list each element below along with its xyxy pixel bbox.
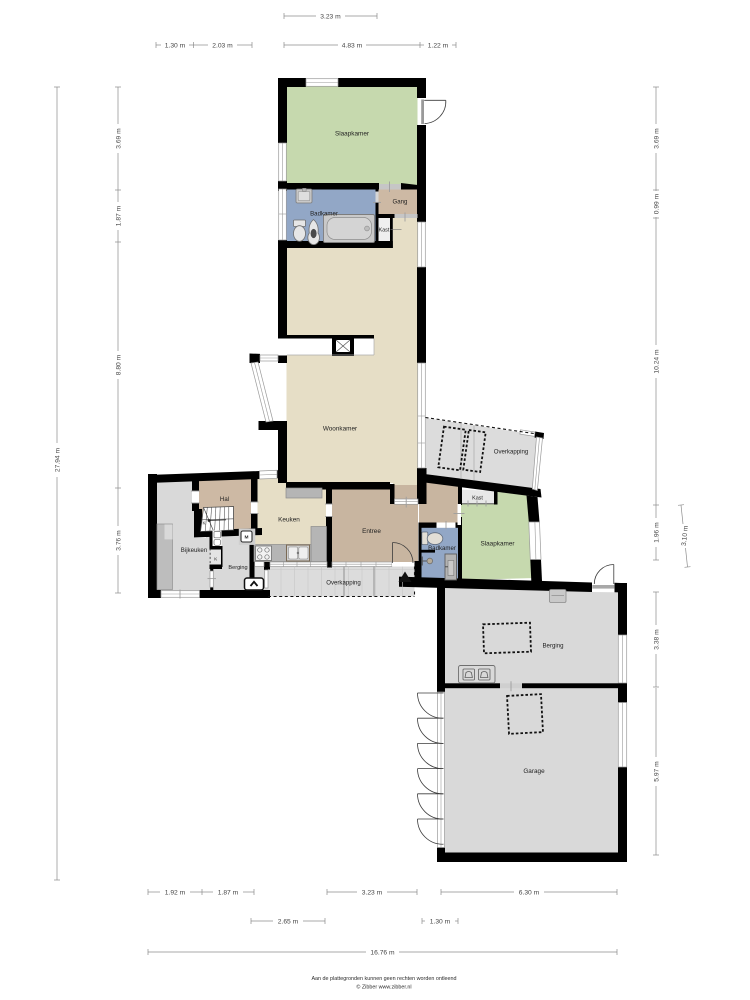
svg-text:K: K [214, 557, 217, 562]
svg-text:Overkapping: Overkapping [326, 580, 361, 587]
svg-text:8.80 m: 8.80 m [116, 354, 123, 375]
svg-text:Kast: Kast [472, 496, 483, 502]
svg-text:Slaapkamer: Slaapkamer [480, 541, 515, 548]
svg-text:K: K [202, 521, 205, 526]
svg-text:3.76 m: 3.76 m [116, 530, 123, 551]
svg-text:Overkapping: Overkapping [494, 449, 529, 456]
svg-text:© Zibber www.zibber.nl: © Zibber www.zibber.nl [356, 984, 411, 991]
svg-text:Badkamer: Badkamer [310, 211, 338, 218]
svg-text:Aan de plattegronden kunnen ge: Aan de plattegronden kunnen geen rechten… [311, 976, 456, 982]
svg-text:3.23 m: 3.23 m [362, 890, 383, 897]
svg-text:3.23 m: 3.23 m [320, 14, 341, 21]
svg-text:27.94 m: 27.94 m [55, 447, 62, 472]
svg-text:3.69 m: 3.69 m [116, 128, 123, 149]
svg-text:1.92 m: 1.92 m [165, 890, 186, 897]
svg-text:1.22 m: 1.22 m [428, 43, 449, 50]
svg-text:Bijkeuken: Bijkeuken [181, 547, 207, 554]
svg-text:1.96 m: 1.96 m [654, 522, 661, 543]
svg-text:M: M [245, 534, 249, 540]
svg-text:Berging: Berging [542, 643, 563, 650]
svg-text:Kast: Kast [379, 228, 390, 234]
svg-text:10.24 m: 10.24 m [654, 349, 661, 374]
svg-text:Woonkamer: Woonkamer [323, 426, 358, 433]
svg-text:3.69 m: 3.69 m [654, 128, 661, 149]
svg-text:4.83 m: 4.83 m [342, 43, 363, 50]
svg-text:16.76 m: 16.76 m [370, 950, 395, 957]
svg-text:2.03 m: 2.03 m [212, 43, 233, 50]
svg-text:1.30 m: 1.30 m [430, 919, 451, 926]
svg-text:0.99 m: 0.99 m [654, 193, 661, 214]
svg-text:1.87 m: 1.87 m [218, 890, 239, 897]
svg-text:Entree: Entree [362, 528, 381, 535]
svg-text:Slaapkamer: Slaapkamer [335, 131, 370, 138]
svg-text:1.87 m: 1.87 m [116, 205, 123, 226]
svg-text:1.30 m: 1.30 m [165, 43, 186, 50]
svg-text:Badkamer: Badkamer [428, 545, 456, 552]
svg-text:Hal: Hal [220, 496, 229, 503]
svg-text:Keuken: Keuken [278, 517, 300, 524]
svg-text:Berging: Berging [228, 565, 247, 571]
svg-text:Gang: Gang [393, 199, 408, 206]
svg-text:Garage: Garage [523, 768, 545, 775]
svg-text:6.30 m: 6.30 m [519, 890, 540, 897]
svg-text:5.97 m: 5.97 m [654, 761, 661, 782]
svg-text:2.65 m: 2.65 m [278, 919, 299, 926]
svg-text:3.38 m: 3.38 m [654, 629, 661, 650]
